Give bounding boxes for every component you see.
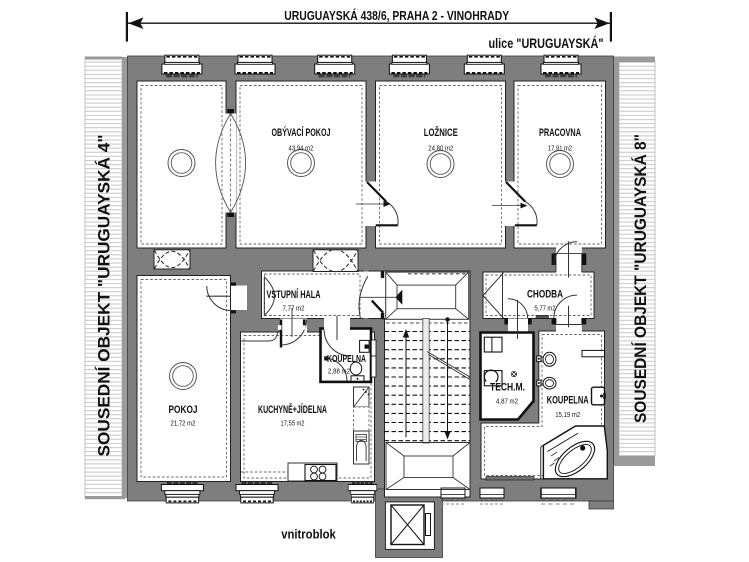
svg-text:KOUPELNA: KOUPELNA xyxy=(547,395,589,407)
svg-text:2,88 m2: 2,88 m2 xyxy=(328,367,350,376)
svg-text:URUGUAYSKÁ 438/6, PRAHA 2 - VI: URUGUAYSKÁ 438/6, PRAHA 2 - VINOHRADY xyxy=(284,8,509,23)
svg-text:SOUSEDNÍ OBJEKT "URUGUAYSKÁ 4": SOUSEDNÍ OBJEKT "URUGUAYSKÁ 4" xyxy=(95,135,114,457)
svg-text:SOUSEDNÍ OBJEKT "URUGUAYSKÁ 8": SOUSEDNÍ OBJEKT "URUGUAYSKÁ 8" xyxy=(631,134,650,423)
svg-text:VSTUPNÍ HALA: VSTUPNÍ HALA xyxy=(267,288,321,301)
svg-text:ulice "URUGUAYSKÁ": ulice "URUGUAYSKÁ" xyxy=(489,35,604,51)
svg-text:POKOJ: POKOJ xyxy=(169,404,198,416)
svg-text:CHODBA: CHODBA xyxy=(527,289,563,301)
svg-text:4,87 m2: 4,87 m2 xyxy=(496,397,518,406)
svg-text:21,72 m2: 21,72 m2 xyxy=(171,419,196,428)
svg-text:PRACOVNA: PRACOVNA xyxy=(539,127,581,139)
svg-text:LOŽNICE: LOŽNICE xyxy=(424,126,458,139)
svg-text:43,94 m2: 43,94 m2 xyxy=(289,144,314,153)
svg-text:TECH.M.: TECH.M. xyxy=(490,382,525,394)
svg-text:7,77 m2: 7,77 m2 xyxy=(283,304,305,313)
svg-text:OBÝVACÍ POKOJ: OBÝVACÍ POKOJ xyxy=(272,126,331,139)
svg-text:15,19 m2: 15,19 m2 xyxy=(555,410,580,419)
svg-text:24,80 m2: 24,80 m2 xyxy=(428,144,453,153)
svg-text:KUCHYNĚ+JÍDELNA: KUCHYNĚ+JÍDELNA xyxy=(258,403,327,416)
svg-text:17,91 m2: 17,91 m2 xyxy=(548,144,572,153)
svg-text:5,77 m2: 5,77 m2 xyxy=(535,304,556,313)
svg-text:KOUPELNA: KOUPELNA xyxy=(327,354,366,365)
svg-text:17,55 m2: 17,55 m2 xyxy=(281,419,305,428)
svg-text:vnitroblok: vnitroblok xyxy=(281,526,336,541)
